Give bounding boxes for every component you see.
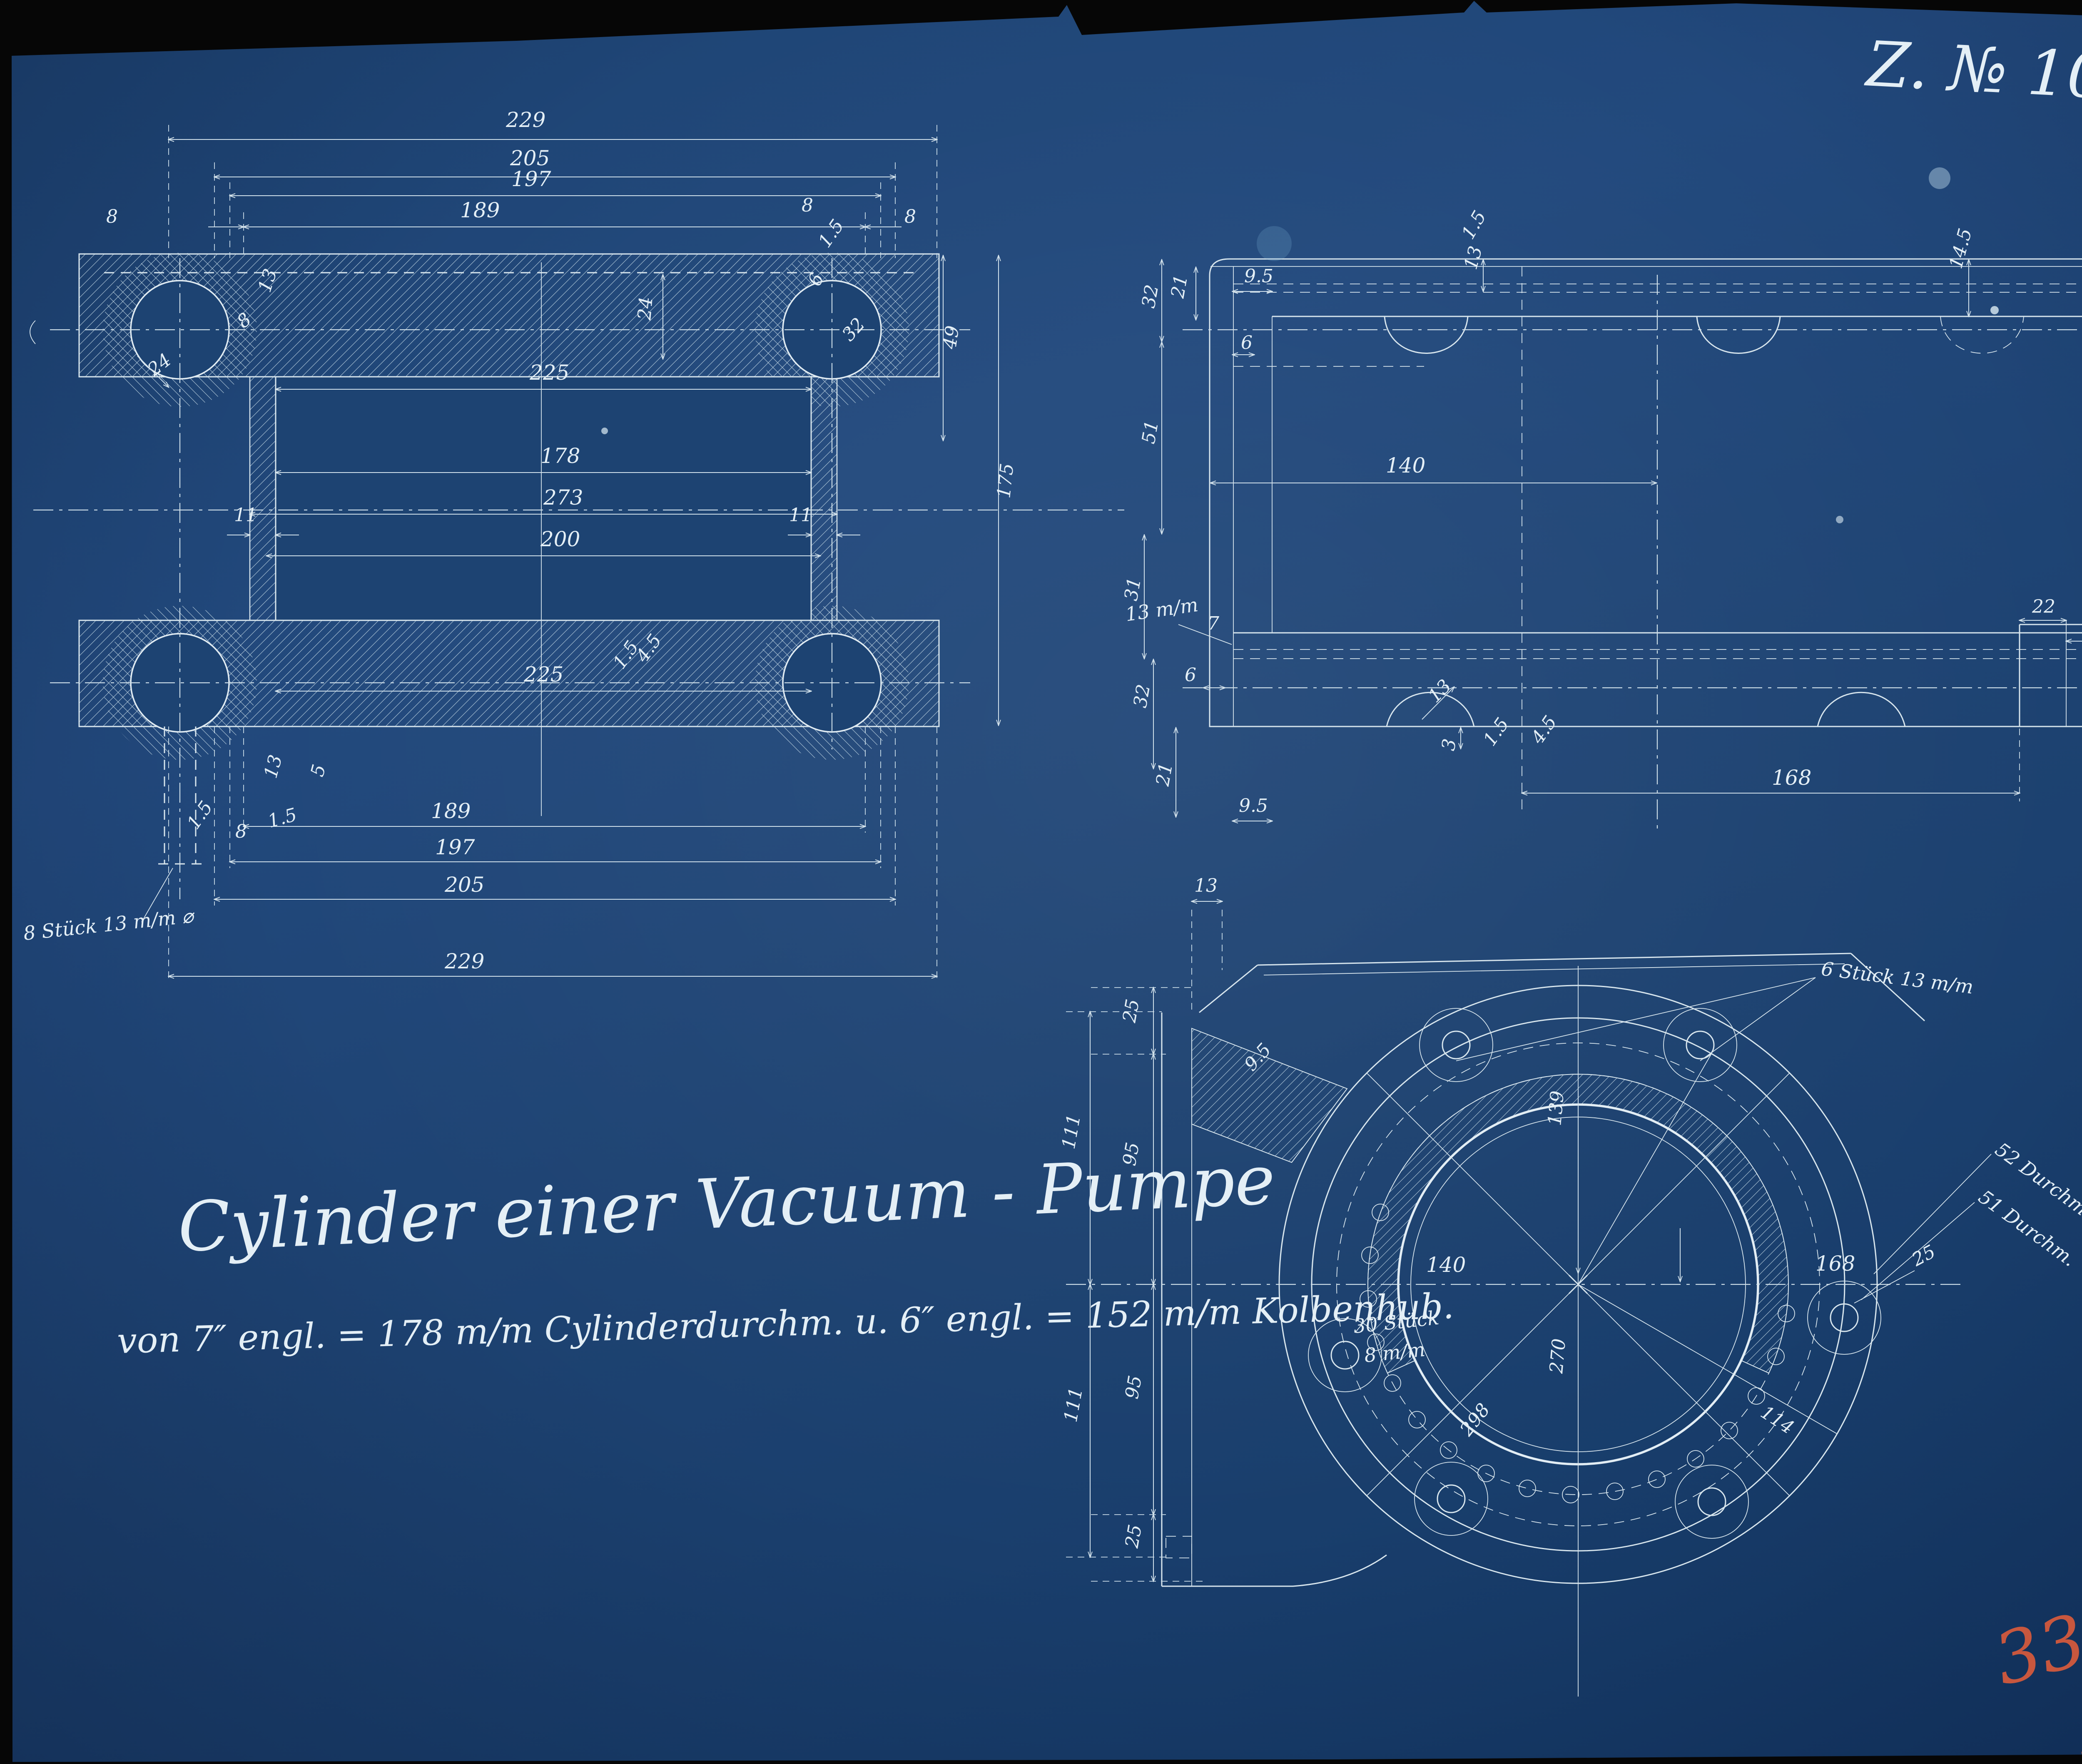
dim-label: 229	[506, 108, 545, 132]
dim-label: 229	[444, 949, 484, 973]
dim-label: 24	[634, 296, 657, 321]
dim-label: 51	[1138, 419, 1163, 445]
dim-label: 22	[2032, 596, 2055, 617]
dim-label: 178	[540, 444, 580, 468]
dim-label: 11	[789, 505, 812, 526]
dim-label: 200	[540, 527, 580, 551]
flange-end-view: 13 9.5 25 95 95 25 111 111 140 168 139 2…	[1058, 875, 2082, 1697]
dim-label: 25	[1118, 998, 1143, 1025]
dim-label: 197	[511, 167, 551, 191]
dim-label: 95	[1121, 1374, 1146, 1401]
dim-label: 1.5	[266, 804, 299, 832]
flange-dimensions	[1066, 901, 1991, 1581]
dim-label: 7	[1208, 613, 1219, 634]
dim-label: 8	[802, 195, 813, 216]
dim-label: 225	[529, 361, 569, 385]
dim-label: 8	[106, 206, 118, 227]
drawing-number: Z. № 1011.	[1863, 28, 2082, 118]
dim-label: 197	[435, 835, 475, 859]
dim-label: 6	[1185, 664, 1196, 686]
dim-label: 13	[1424, 675, 1456, 707]
dim-label: 114	[1757, 1401, 1798, 1438]
dim-label: 140	[1386, 453, 1425, 478]
speck	[1929, 167, 1950, 189]
speck	[601, 428, 608, 434]
dim-label: 14.5	[1945, 226, 1976, 271]
drawing-title: Cylinder einer Vacuum - Pumpe	[176, 1140, 1277, 1267]
side-view: 9.5 21 32 6 51 31 7 140 13 m/m 6 32 21 9…	[1121, 207, 2082, 829]
dim-label: 205	[444, 873, 484, 897]
dim-label: 175	[993, 462, 1018, 499]
dim-label: 13	[1194, 875, 1218, 896]
dim-label: 3	[1438, 737, 1461, 752]
dim-label: 6	[1241, 332, 1253, 353]
red-inventory-number: 3366	[1986, 1575, 2082, 1702]
dim-label: 13	[260, 753, 286, 781]
side-linework	[1183, 259, 2082, 829]
dim-label: 25	[1908, 1241, 1939, 1271]
dim-label: 1.5	[1457, 207, 1490, 243]
dim-label: 5	[306, 762, 330, 779]
dim-label: 32	[1138, 283, 1163, 310]
smudge	[1257, 226, 1292, 261]
drawing-canvas: 229 205 197 189 8 8 13 8 24 8 1.5 6 24 3…	[0, 0, 2082, 1764]
dim-label: 139	[1544, 1090, 1568, 1127]
dim-label: 273	[543, 485, 583, 510]
dim-label: 31	[1121, 576, 1146, 602]
dim-label: 8	[235, 821, 247, 842]
dim-label: 8	[904, 206, 916, 227]
blueprint-scan: 229 205 197 189 8 8 13 8 24 8 1.5 6 24 3…	[0, 0, 2082, 1764]
dim-label: 168	[1772, 766, 1811, 790]
dim-label: 9.5	[1244, 266, 1273, 287]
dim-label: 4.5	[1527, 712, 1561, 748]
speck	[1836, 516, 1843, 523]
dim-label: 140	[1426, 1253, 1466, 1277]
dim-label: 49	[939, 324, 963, 351]
dim-label: 21	[1167, 273, 1192, 300]
dim-label: 21	[1152, 761, 1177, 788]
dim-label: 1.5	[1479, 714, 1513, 750]
dim-label: 225	[523, 662, 563, 687]
dim-label: 32	[1130, 683, 1155, 709]
dim-label: 1.5	[814, 216, 848, 252]
speck	[1990, 306, 1999, 314]
side-dim-labels: 9.5 21 32 6 51 31 7 140 13 m/m 6 32 21 9…	[1121, 207, 2082, 816]
dim-label: 1.5	[183, 797, 217, 833]
bolt-count-note: 8 Stück 13 m/m ⌀	[22, 904, 197, 945]
dim-label: 168	[1816, 1251, 1855, 1276]
dim-label: 111	[1058, 1112, 1085, 1151]
dim-label: 25	[1121, 1523, 1146, 1550]
bolt-note: 6 Stück 13 m/m	[1820, 957, 1975, 998]
front-section-view: 229 205 197 189 8 8 13 8 24 8 1.5 6 24 3…	[22, 108, 1124, 983]
dim-label: 270	[1546, 1338, 1570, 1375]
dim-label: 11	[234, 505, 257, 526]
red-annotations: 3366 12 187	[1986, 1528, 2082, 1756]
dim-label: 9.5	[1239, 795, 1268, 816]
dim-label: 298	[1456, 1399, 1494, 1440]
drawing-subtitle: von 7″ engl. = 178 m/m Cylinderdurchm. u…	[117, 1286, 1454, 1361]
dim-label: 189	[431, 799, 471, 823]
dim-label: 111	[1060, 1386, 1087, 1424]
dim-label: 189	[460, 198, 500, 222]
edge-mark	[30, 321, 35, 344]
dim-label: 13	[1460, 244, 1487, 272]
side-dimensions	[1144, 260, 2082, 821]
